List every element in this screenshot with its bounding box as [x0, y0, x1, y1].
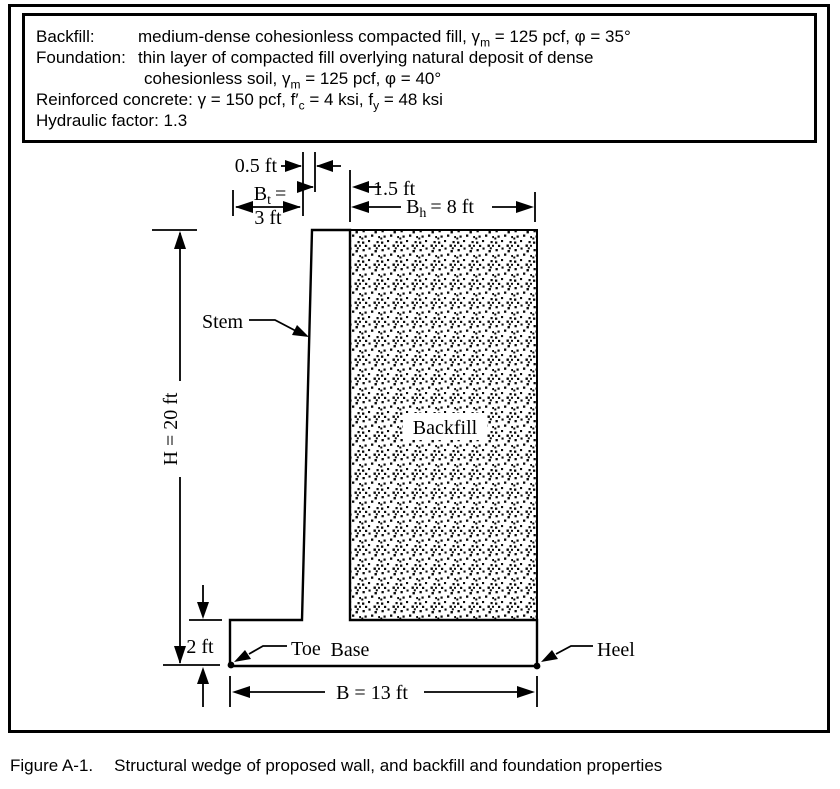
- stem-leader-arrow: [292, 325, 309, 337]
- figure-caption-text: Structural wedge of proposed wall, and b…: [114, 756, 662, 775]
- base-thickness-label: 2 ft: [186, 636, 214, 658]
- bh-dim-arrow-left: [351, 201, 369, 213]
- height-dim-label: H = 20 ft: [160, 392, 182, 465]
- h-dim-arrow-up: [174, 231, 186, 249]
- heel-point-dot: [534, 663, 541, 670]
- stemtop-dim-arrow-right: [297, 181, 314, 193]
- stem-leader: [249, 320, 296, 331]
- b-dim-arrow-right: [517, 686, 535, 698]
- heel-width-label: Bh= 8 ft: [406, 196, 474, 221]
- base-thickness-arrow-up: [197, 667, 209, 684]
- document-page: { "colors": { "ink": "#000000", "paper":…: [0, 0, 840, 789]
- toe-point-dot: [228, 662, 235, 669]
- figure-caption: Figure A-1.Structural wedge of proposed …: [10, 756, 662, 776]
- h-dim-arrow-down: [174, 646, 186, 664]
- batter-dim-label: 0.5 ft: [235, 155, 278, 177]
- stem-label: Stem: [202, 311, 244, 333]
- batter-dim-arrow-right: [285, 160, 302, 172]
- backfill-label: Backfill: [413, 417, 478, 439]
- base-width-label: B = 13 ft: [336, 682, 408, 704]
- toe-width-value: 3 ft: [254, 207, 282, 229]
- heel-label: Heel: [597, 639, 635, 661]
- bt-dim-arrow-left: [235, 201, 253, 213]
- batter-dim-arrow-left: [316, 160, 333, 172]
- bh-dim-arrow-right: [516, 201, 534, 213]
- toe-label: Toe: [291, 638, 321, 660]
- toe-width-symbol: Bt=: [254, 183, 287, 208]
- stemtop-dim-arrow-left: [352, 181, 369, 193]
- heel-leader: [556, 646, 593, 654]
- figure-number: Figure A-1.: [10, 756, 93, 775]
- base-label: Base: [331, 639, 370, 661]
- base-thickness-arrow-down: [197, 602, 209, 619]
- wall-diagram: 0.5 ft Bt= 3 ft 1.5 ft Bh= 8 ft H = 20 f…: [0, 0, 840, 789]
- heel-leader-arrow: [541, 650, 558, 662]
- b-dim-arrow-left: [232, 686, 250, 698]
